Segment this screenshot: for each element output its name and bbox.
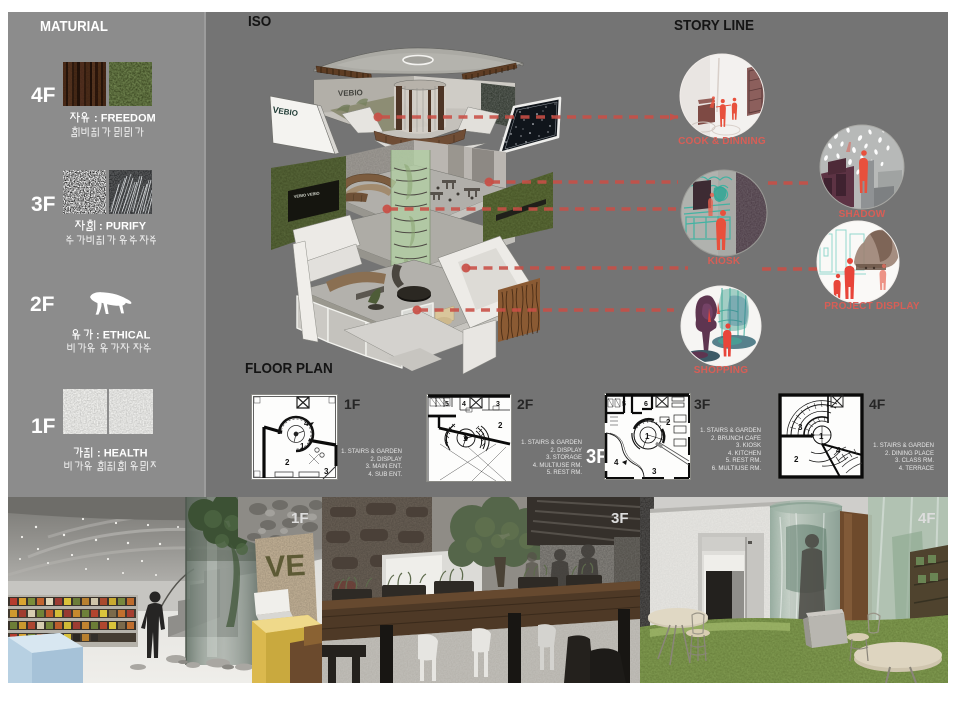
svg-text:3: 3 [496, 401, 500, 408]
svg-text:2: 2 [285, 458, 290, 467]
svg-text:: FREEDOM: : FREEDOM [94, 113, 156, 125]
svg-text:2: 2 [666, 418, 671, 427]
svg-text:3: 3 [652, 467, 657, 476]
svg-text:5: 5 [445, 401, 449, 408]
svg-text:: PURIFY: : PURIFY [99, 221, 147, 233]
svg-text:4: 4 [836, 446, 841, 455]
svg-text:: ETHICAL: : ETHICAL [96, 330, 151, 342]
svg-text:VEBIO: VEBIO [338, 88, 363, 98]
svg-text:4: 4 [462, 401, 466, 408]
svg-text:1: 1 [300, 442, 305, 451]
svg-text:1: 1 [463, 434, 468, 443]
svg-text:4: 4 [614, 458, 619, 467]
svg-text:5: 5 [622, 401, 626, 408]
svg-text:1: 1 [819, 432, 824, 441]
svg-text:4: 4 [304, 419, 309, 428]
svg-text:2: 2 [498, 421, 503, 430]
svg-text:: HEALTH: : HEALTH [97, 448, 148, 460]
svg-text:3: 3 [798, 423, 803, 432]
svg-text:2: 2 [794, 455, 799, 464]
svg-text:VE: VE [265, 549, 307, 584]
svg-text:6: 6 [644, 401, 648, 408]
svg-text:1: 1 [645, 432, 650, 441]
